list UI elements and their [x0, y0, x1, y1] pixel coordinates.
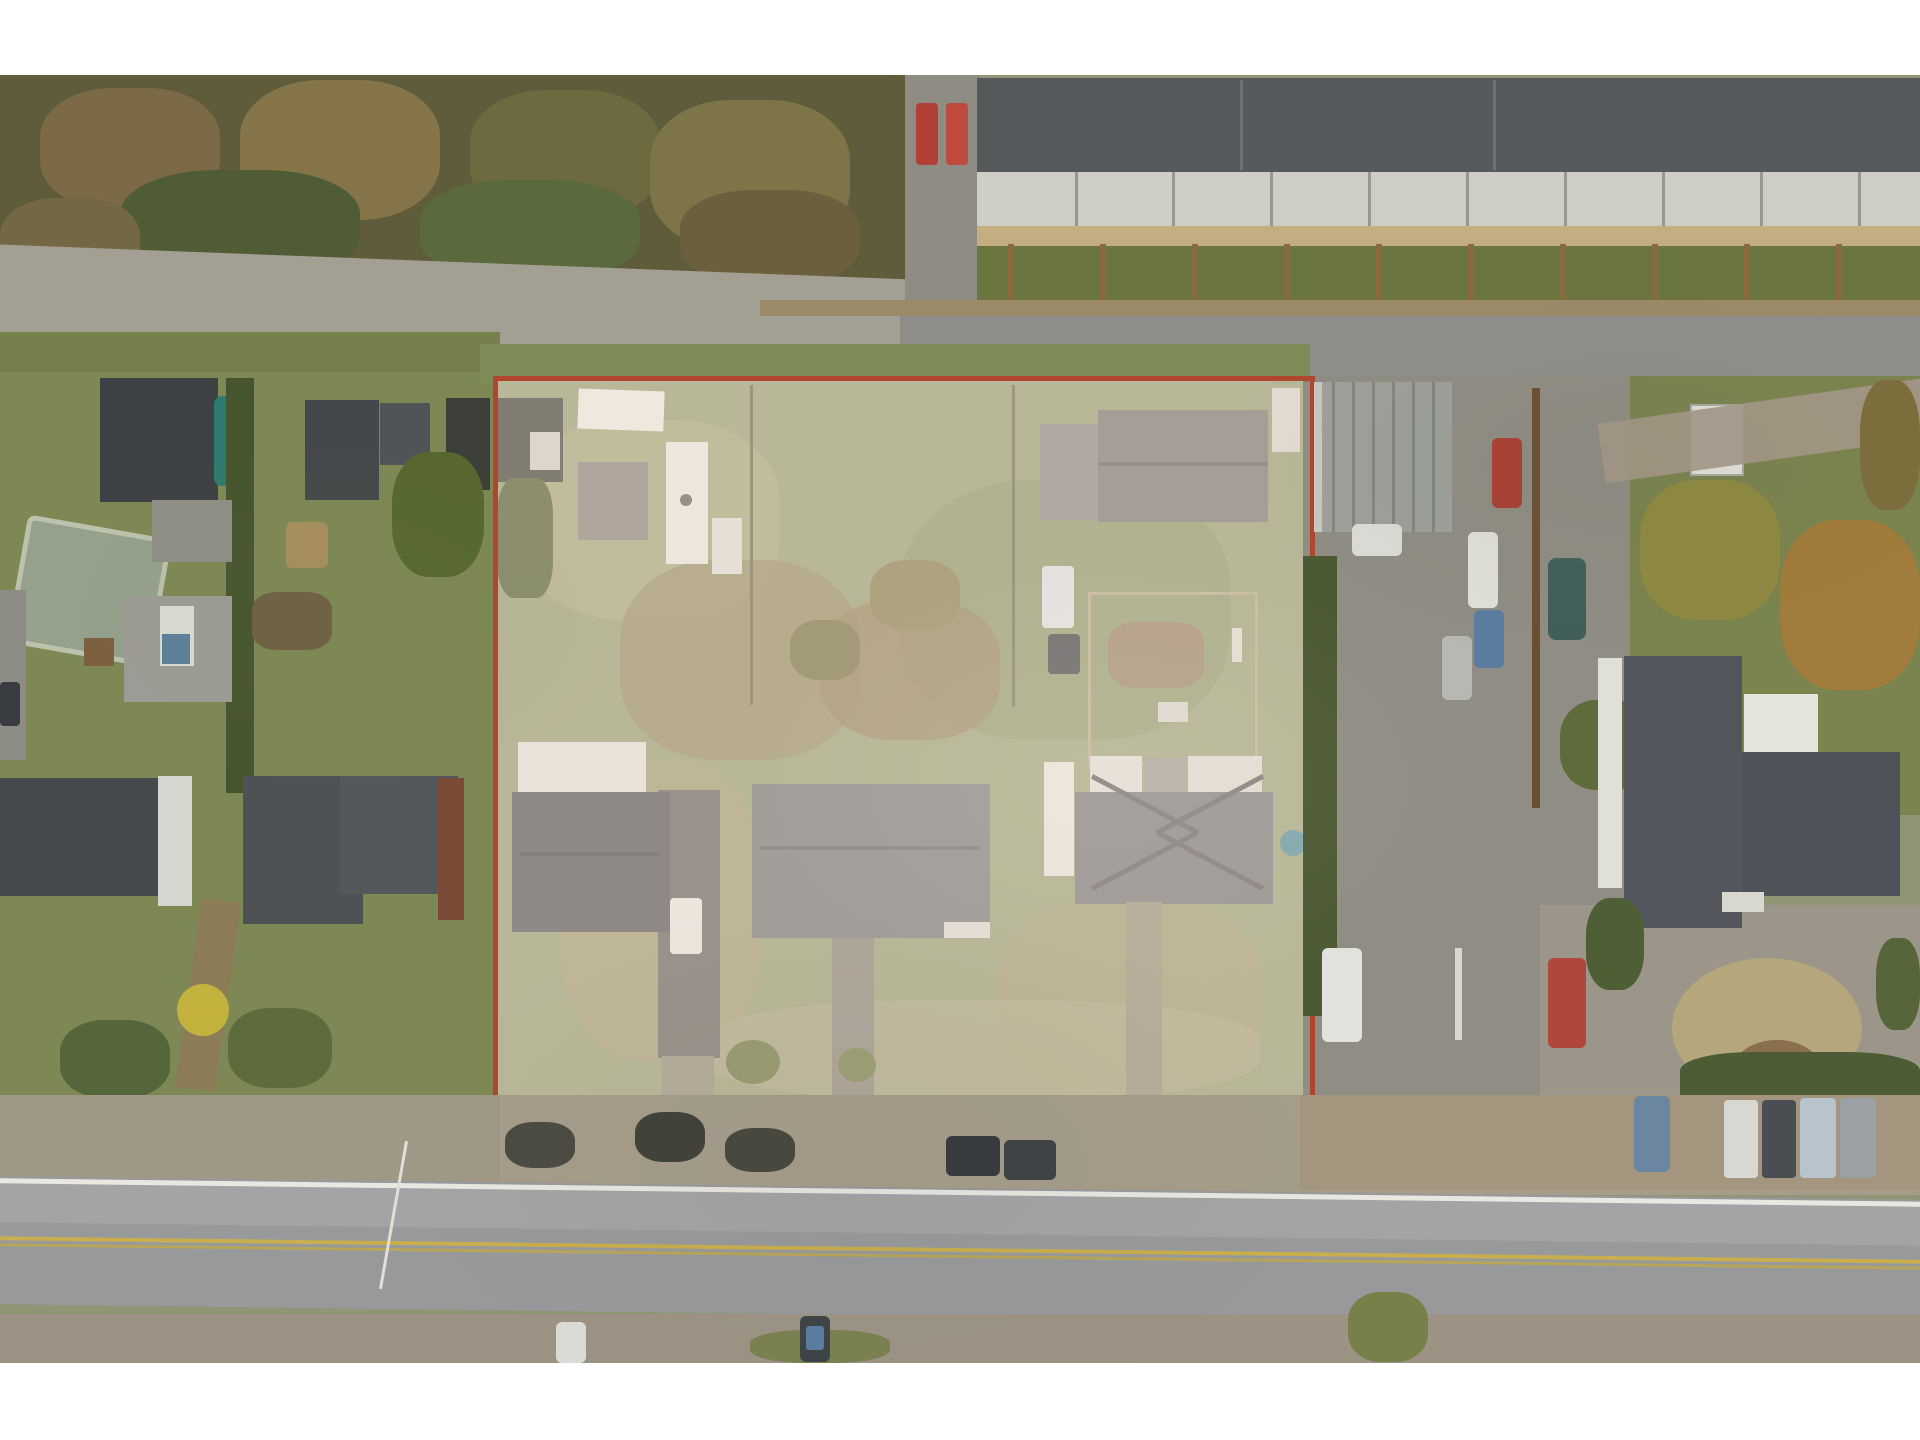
townhouse-roof-seam [1240, 80, 1243, 170]
townhouse-yards [977, 246, 1920, 302]
neighbor-house-roof [1624, 656, 1742, 928]
deck-divider [1466, 172, 1469, 227]
patio [152, 500, 232, 562]
red-car [1492, 438, 1522, 508]
barn-stripe [1372, 382, 1375, 532]
road-shoulder-patch [0, 1095, 500, 1190]
parked-car [0, 682, 20, 726]
red-brown-wall [438, 778, 464, 920]
deck-divider [1662, 172, 1665, 227]
shed-roof [305, 400, 379, 500]
yard-fence-post [1652, 244, 1658, 302]
utility-pole [1455, 948, 1462, 1040]
autumn-shrub [1780, 520, 1920, 690]
rv-trailer [1598, 658, 1622, 888]
autumn-shrub [1640, 480, 1780, 620]
yard-fence-post [1560, 244, 1566, 302]
yard-fence-post [1008, 244, 1014, 302]
barn-stripe [1352, 382, 1355, 532]
deck-divider [1760, 172, 1763, 227]
hedge-column [1303, 556, 1337, 1016]
wood-fence [1532, 388, 1540, 808]
autumn-shrub [1860, 380, 1920, 510]
brown-shed [84, 638, 114, 666]
white-suv [1468, 532, 1498, 608]
deck-divider [1368, 172, 1371, 227]
barn-white-edge [1314, 382, 1322, 532]
big-bush [392, 452, 484, 577]
lower-shoulder [0, 1314, 1920, 1363]
debris-mound [635, 1112, 705, 1162]
white-car [1352, 524, 1402, 556]
barn-stripe [1432, 382, 1435, 532]
yard-fence-post [1836, 244, 1842, 302]
bush [228, 1008, 332, 1088]
red-truck [946, 103, 968, 165]
photo-frame-top [0, 0, 1920, 75]
white-van [1322, 948, 1362, 1042]
debris-mound [725, 1128, 795, 1172]
yard-fence-post [1744, 244, 1750, 302]
parked-van [1840, 1098, 1876, 1178]
parked-car [556, 1322, 586, 1363]
yard-fence-post [1192, 244, 1198, 302]
neighbor-house-roof [1742, 752, 1900, 896]
deck-divider [1075, 172, 1078, 227]
deck-divider [1172, 172, 1175, 227]
debris-mound [505, 1122, 575, 1168]
far-left-driveway [0, 590, 26, 760]
townhouse-roof-seam [1493, 80, 1496, 170]
grass-tuft [1348, 1292, 1428, 1362]
yard-clutter [252, 592, 332, 650]
bush [1876, 938, 1920, 1030]
house-roof [0, 778, 158, 896]
verge-left [0, 332, 500, 372]
porch-white [1722, 892, 1764, 912]
deck-divider [1270, 172, 1273, 227]
white-driveway [158, 776, 192, 906]
hedge-column [226, 378, 254, 793]
townhouse-roof [977, 78, 1920, 173]
blue-tarp [162, 634, 190, 664]
parked-car [946, 1136, 1000, 1176]
photo-frame-bottom [0, 1363, 1920, 1440]
townhouse-deck-row [977, 172, 1920, 227]
aerial-photo-canvas [0, 0, 1920, 1440]
bush [60, 1020, 170, 1098]
teal-car [1548, 558, 1586, 640]
red-truck [916, 103, 938, 165]
barn-stripe [1392, 382, 1395, 532]
carport-white [1744, 694, 1818, 752]
deck-divider [1858, 172, 1861, 227]
barn-stripe [1412, 382, 1415, 532]
blue-car [1474, 610, 1504, 668]
yard-fence-post [1284, 244, 1290, 302]
silver-car [1442, 636, 1472, 700]
parked-van [1724, 1100, 1758, 1178]
parked-car [1634, 1096, 1670, 1172]
woodpile [286, 522, 328, 568]
gravel-strip-below-yards [760, 300, 1920, 316]
aerial-photo [0, 75, 1920, 1363]
parked-van [1762, 1100, 1796, 1178]
car-sunroof [806, 1326, 824, 1350]
parked-van [1800, 1098, 1836, 1178]
yard-fence-post [1100, 244, 1106, 302]
bush [1586, 898, 1644, 990]
shed-roof [100, 378, 218, 502]
barn-stripe [1332, 382, 1335, 532]
deck-divider [1564, 172, 1567, 227]
yellow-bush [177, 984, 229, 1036]
yard-fence-post [1376, 244, 1382, 302]
townhouse-fence-band [977, 226, 1920, 246]
property-boundary [493, 376, 1315, 1115]
yard-fence-post [1468, 244, 1474, 302]
red-truck [1548, 958, 1586, 1048]
parked-car [1004, 1140, 1056, 1180]
